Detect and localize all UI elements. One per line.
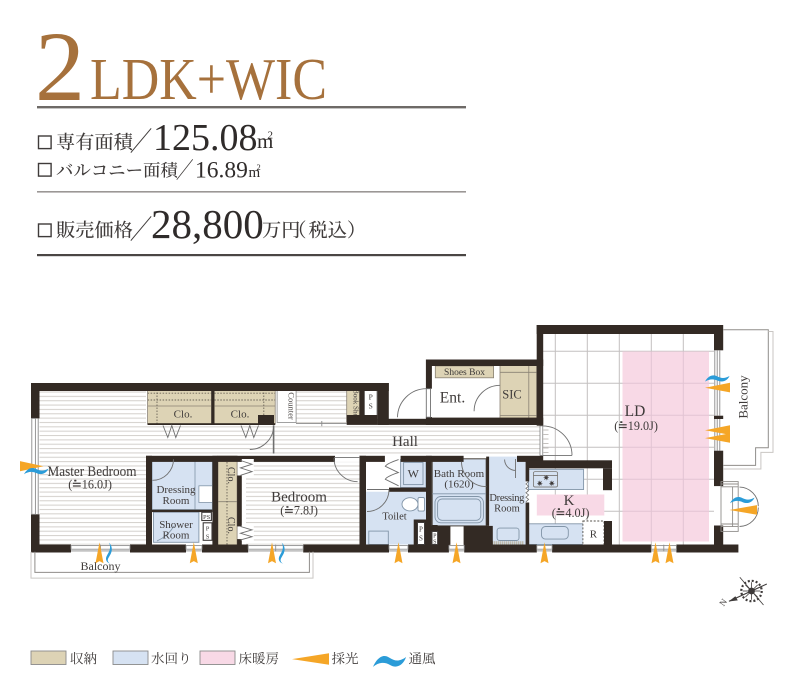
svg-text:Counter: Counter <box>287 392 297 420</box>
svg-text:Room: Room <box>163 529 190 541</box>
svg-text:Clo.: Clo. <box>225 467 236 484</box>
svg-text:P: P <box>206 526 210 533</box>
svg-text:4.0J): 4.0J) <box>565 506 589 520</box>
svg-text:LD: LD <box>625 403 646 420</box>
svg-text:(: ( <box>280 504 284 518</box>
svg-text:16.89: 16.89 <box>195 158 248 184</box>
svg-text:Balcony: Balcony <box>736 375 751 419</box>
svg-text:W: W <box>408 467 420 481</box>
svg-text:R: R <box>590 529 598 541</box>
svg-text:(: ( <box>614 419 618 433</box>
svg-text:2: 2 <box>257 162 261 172</box>
svg-text:Hall: Hall <box>392 434 418 450</box>
svg-text:S: S <box>419 535 423 543</box>
svg-text:SIC: SIC <box>502 388 521 402</box>
svg-text:28,800: 28,800 <box>151 201 264 247</box>
svg-text:LDK+WIC: LDK+WIC <box>90 46 327 112</box>
svg-text:2: 2 <box>268 130 274 142</box>
svg-text:Room: Room <box>494 503 520 514</box>
svg-text:7.8J): 7.8J) <box>294 504 318 518</box>
svg-text:S: S <box>433 540 436 546</box>
svg-text:Clo.: Clo. <box>225 517 236 534</box>
svg-text:16.0J): 16.0J) <box>82 477 112 491</box>
svg-text:Ent.: Ent. <box>440 389 465 406</box>
svg-text:Shoes Box: Shoes Box <box>444 368 485 378</box>
svg-text:P: P <box>419 526 423 534</box>
svg-text:125.08: 125.08 <box>153 117 258 159</box>
svg-text:Clo.: Clo. <box>174 409 193 421</box>
svg-text:(: ( <box>68 477 72 491</box>
svg-text:Toilet: Toilet <box>382 512 406 523</box>
svg-text:2: 2 <box>35 11 85 122</box>
svg-text:S: S <box>206 534 210 541</box>
svg-text:S: S <box>369 402 373 411</box>
svg-text:19.0J): 19.0J) <box>628 419 658 433</box>
svg-text:P: P <box>369 393 373 402</box>
svg-text:Room: Room <box>163 495 190 507</box>
svg-text:PS: PS <box>203 514 211 521</box>
svg-text:(: ( <box>552 506 556 520</box>
svg-text:Clo.: Clo. <box>231 409 250 421</box>
